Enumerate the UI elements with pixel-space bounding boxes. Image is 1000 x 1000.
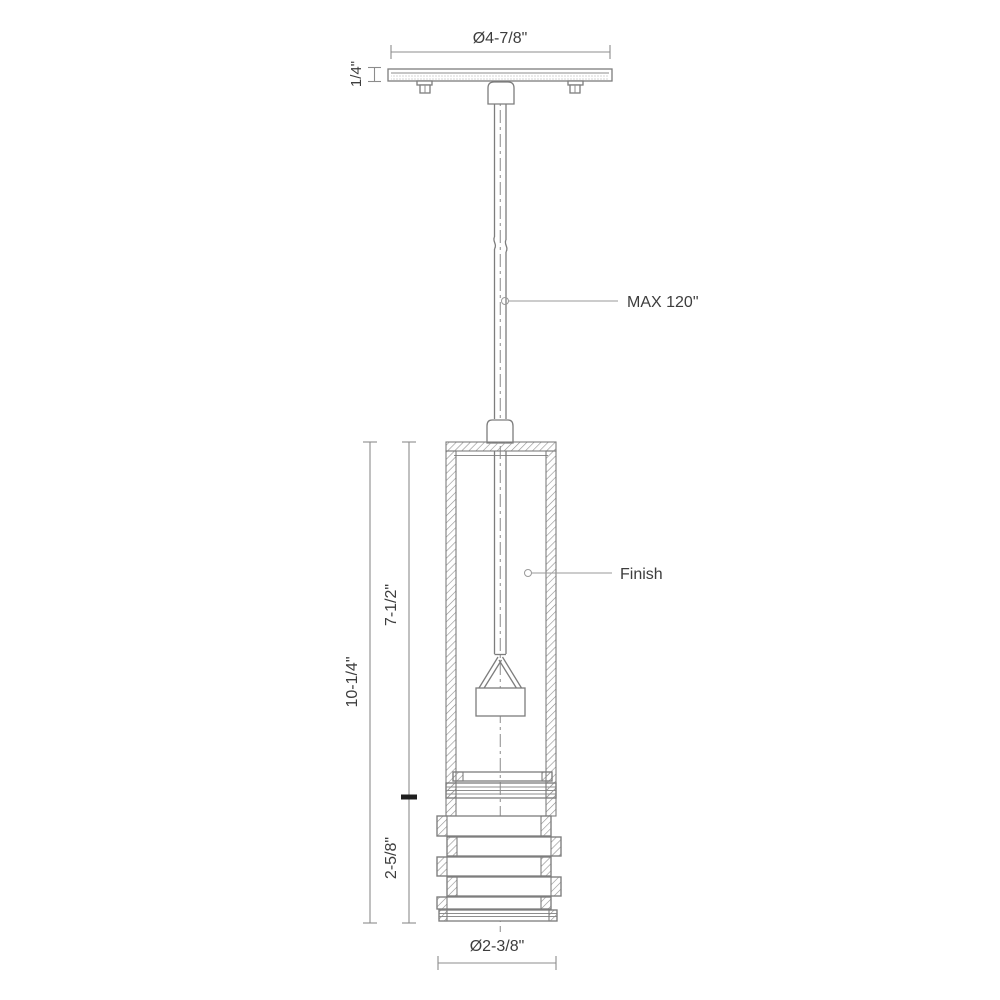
pendant-dimension-drawing: Ø4-7/8" 1/4" MAX 120" xyxy=(0,0,1000,1000)
leader-dot xyxy=(502,298,509,305)
canopy-thickness-label: 1/4" xyxy=(348,61,365,87)
spiral-band-stack xyxy=(437,816,561,921)
inner-retaining-rings xyxy=(446,772,556,798)
band xyxy=(447,837,561,856)
overall-height-label: 10-1/4" xyxy=(344,656,361,707)
canopy-thickness-dimension: 1/4" xyxy=(348,61,381,87)
yoke-strap xyxy=(479,657,498,688)
lower-height-label: 2-5/8" xyxy=(383,837,400,879)
stem-coupler-lower xyxy=(487,420,513,443)
segment-height-dimension: 7-1/2" 2-5/8" xyxy=(383,442,417,923)
stem-coupler-upper xyxy=(488,82,514,104)
yoke-strap xyxy=(484,660,502,689)
max-drop-callout: MAX 120" xyxy=(502,294,699,311)
cylinder-shell xyxy=(446,442,556,816)
upper-height-label: 7-1/2" xyxy=(383,584,400,626)
bottom-cap xyxy=(439,910,557,921)
leader-dot xyxy=(525,570,532,577)
break-symbol xyxy=(494,237,496,249)
canopy-diameter-label: Ø4-7/8" xyxy=(473,30,528,47)
max-drop-label: MAX 120" xyxy=(627,294,699,311)
canopy-diameter-dimension: Ø4-7/8" xyxy=(391,30,610,59)
yoke-strap xyxy=(503,657,522,688)
finish-label: Finish xyxy=(620,566,663,583)
left-wall xyxy=(446,451,456,816)
finish-callout: Finish xyxy=(525,566,663,583)
right-wall xyxy=(546,451,556,816)
lamp-socket xyxy=(476,688,525,716)
band xyxy=(437,857,551,876)
technical-drawing-page: Ø4-7/8" 1/4" MAX 120" xyxy=(0,0,1000,1000)
body-diameter-label: Ø2-3/8" xyxy=(470,938,525,955)
band xyxy=(437,816,551,836)
junction-tick xyxy=(401,795,417,800)
top-plate xyxy=(446,442,556,451)
band xyxy=(447,877,561,896)
body-diameter-dimension: Ø2-3/8" xyxy=(438,938,556,970)
break-symbol xyxy=(505,240,507,252)
overall-height-dimension: 10-1/4" xyxy=(344,442,377,923)
canopy-plate xyxy=(388,69,612,81)
yoke-strap xyxy=(499,660,517,689)
band xyxy=(437,897,551,909)
